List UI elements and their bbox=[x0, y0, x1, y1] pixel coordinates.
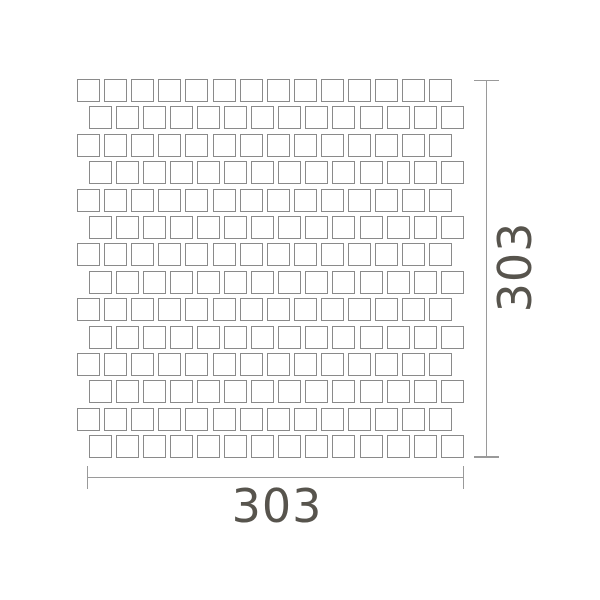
mosaic-tile bbox=[414, 216, 437, 239]
mosaic-tile bbox=[375, 134, 398, 157]
width-dimension-label: 303 bbox=[177, 483, 377, 529]
mosaic-tile bbox=[348, 134, 371, 157]
mosaic-tile bbox=[224, 380, 247, 403]
mosaic-tile bbox=[387, 271, 410, 294]
mosaic-tile bbox=[251, 326, 274, 349]
mosaic-tile bbox=[213, 298, 236, 321]
mosaic-tile bbox=[143, 380, 166, 403]
mosaic-tile bbox=[321, 353, 344, 376]
mosaic-tile bbox=[414, 271, 437, 294]
width-dimension-left-tick bbox=[87, 466, 88, 489]
mosaic-tile bbox=[131, 189, 154, 212]
mosaic-tile bbox=[89, 435, 112, 458]
mosaic-tile bbox=[375, 189, 398, 212]
mosaic-tile bbox=[278, 216, 301, 239]
mosaic-tile bbox=[278, 380, 301, 403]
mosaic-tile bbox=[77, 243, 100, 266]
mosaic-tile bbox=[267, 79, 290, 102]
mosaic-tile bbox=[414, 161, 437, 184]
mosaic-tile bbox=[429, 189, 452, 212]
mosaic-tile bbox=[77, 298, 100, 321]
mosaic-tile bbox=[332, 271, 355, 294]
height-dimension-label: 303 bbox=[481, 197, 549, 337]
mosaic-tile bbox=[402, 243, 425, 266]
mosaic-tile bbox=[332, 435, 355, 458]
mosaic-tile bbox=[158, 353, 181, 376]
mosaic-tile bbox=[251, 271, 274, 294]
mosaic-tile bbox=[143, 326, 166, 349]
mosaic-tile bbox=[197, 435, 220, 458]
mosaic-tile bbox=[441, 380, 464, 403]
mosaic-tile bbox=[278, 106, 301, 129]
height-dimension-bottom-cap bbox=[474, 456, 499, 458]
width-dimension-line bbox=[87, 477, 464, 478]
mosaic-tile bbox=[89, 326, 112, 349]
mosaic-tile bbox=[429, 353, 452, 376]
mosaic-tile bbox=[89, 380, 112, 403]
mosaic-tile bbox=[104, 189, 127, 212]
mosaic-tile bbox=[104, 79, 127, 102]
mosaic-tile bbox=[294, 243, 317, 266]
mosaic-tile bbox=[402, 189, 425, 212]
mosaic-tile bbox=[360, 271, 383, 294]
mosaic-tile bbox=[213, 243, 236, 266]
mosaic-tile bbox=[348, 243, 371, 266]
mosaic-tile bbox=[77, 79, 100, 102]
mosaic-tile bbox=[158, 79, 181, 102]
mosaic-tile bbox=[104, 353, 127, 376]
mosaic-tile bbox=[185, 134, 208, 157]
mosaic-tile bbox=[360, 435, 383, 458]
mosaic-tile bbox=[197, 271, 220, 294]
mosaic-tile bbox=[429, 134, 452, 157]
mosaic-tile bbox=[294, 408, 317, 431]
mosaic-tile bbox=[360, 106, 383, 129]
mosaic-tile bbox=[185, 243, 208, 266]
mosaic-tile bbox=[305, 106, 328, 129]
mosaic-tile bbox=[321, 189, 344, 212]
mosaic-tile bbox=[414, 326, 437, 349]
mosaic-tile bbox=[332, 161, 355, 184]
mosaic-tile bbox=[387, 106, 410, 129]
mosaic-tile bbox=[387, 435, 410, 458]
mosaic-tile bbox=[224, 216, 247, 239]
mosaic-tile bbox=[143, 106, 166, 129]
mosaic-tile bbox=[348, 79, 371, 102]
mosaic-tile bbox=[224, 435, 247, 458]
mosaic-tile bbox=[143, 216, 166, 239]
height-dimension-top-cap bbox=[474, 80, 499, 82]
mosaic-tile bbox=[414, 106, 437, 129]
mosaic-tile bbox=[116, 380, 139, 403]
mosaic-tile bbox=[332, 380, 355, 403]
mosaic-tile bbox=[429, 408, 452, 431]
mosaic-tile bbox=[267, 134, 290, 157]
mosaic-tile bbox=[429, 79, 452, 102]
mosaic-tile bbox=[116, 326, 139, 349]
mosaic-tile bbox=[360, 380, 383, 403]
mosaic-tile bbox=[305, 271, 328, 294]
mosaic-tile bbox=[305, 161, 328, 184]
mosaic-tile bbox=[240, 189, 263, 212]
mosaic-tile bbox=[158, 134, 181, 157]
mosaic-tile bbox=[143, 435, 166, 458]
mosaic-tile bbox=[116, 161, 139, 184]
mosaic-tile bbox=[332, 216, 355, 239]
mosaic-tile bbox=[251, 216, 274, 239]
mosaic-tile bbox=[240, 134, 263, 157]
mosaic-tile bbox=[441, 216, 464, 239]
mosaic-tile bbox=[185, 189, 208, 212]
mosaic-tile bbox=[414, 380, 437, 403]
mosaic-tile bbox=[441, 435, 464, 458]
mosaic-tile bbox=[197, 380, 220, 403]
mosaic-tile bbox=[240, 79, 263, 102]
mosaic-tile bbox=[294, 134, 317, 157]
mosaic-tile bbox=[185, 298, 208, 321]
mosaic-tile bbox=[402, 353, 425, 376]
mosaic-tile bbox=[170, 161, 193, 184]
mosaic-tile bbox=[143, 271, 166, 294]
mosaic-tile bbox=[143, 161, 166, 184]
mosaic-tile bbox=[158, 298, 181, 321]
mosaic-tile bbox=[332, 106, 355, 129]
mosaic-tile bbox=[278, 161, 301, 184]
mosaic-tile bbox=[213, 134, 236, 157]
mosaic-tile bbox=[116, 271, 139, 294]
mosaic-tile bbox=[251, 161, 274, 184]
mosaic-tile bbox=[131, 353, 154, 376]
mosaic-tile bbox=[170, 271, 193, 294]
technical-drawing-canvas: 303 303 bbox=[0, 0, 600, 600]
mosaic-tile bbox=[321, 79, 344, 102]
mosaic-tile bbox=[414, 435, 437, 458]
mosaic-tile bbox=[429, 243, 452, 266]
mosaic-tile bbox=[213, 79, 236, 102]
mosaic-tile bbox=[267, 298, 290, 321]
mosaic-tile bbox=[348, 189, 371, 212]
mosaic-tile bbox=[224, 271, 247, 294]
mosaic-tile bbox=[240, 353, 263, 376]
mosaic-tile bbox=[158, 189, 181, 212]
mosaic-tile bbox=[197, 326, 220, 349]
mosaic-tile bbox=[251, 435, 274, 458]
mosaic-tile bbox=[197, 216, 220, 239]
mosaic-tile bbox=[104, 243, 127, 266]
mosaic-tile bbox=[170, 216, 193, 239]
mosaic-tile bbox=[375, 79, 398, 102]
mosaic-tile bbox=[441, 326, 464, 349]
mosaic-tile bbox=[77, 134, 100, 157]
mosaic-tile bbox=[402, 298, 425, 321]
mosaic-tile bbox=[278, 271, 301, 294]
mosaic-tile bbox=[360, 216, 383, 239]
mosaic-tile bbox=[387, 326, 410, 349]
mosaic-tile bbox=[131, 243, 154, 266]
mosaic-tile bbox=[213, 353, 236, 376]
mosaic-tile bbox=[360, 326, 383, 349]
mosaic-tile bbox=[131, 298, 154, 321]
mosaic-tile bbox=[375, 408, 398, 431]
mosaic-tile bbox=[294, 79, 317, 102]
mosaic-tile bbox=[267, 353, 290, 376]
mosaic-tile bbox=[402, 134, 425, 157]
mosaic-tile bbox=[375, 353, 398, 376]
mosaic-tile bbox=[251, 380, 274, 403]
mosaic-tile bbox=[224, 106, 247, 129]
mosaic-tile bbox=[104, 298, 127, 321]
mosaic-tile bbox=[170, 106, 193, 129]
mosaic-tile bbox=[402, 79, 425, 102]
mosaic-tile bbox=[387, 216, 410, 239]
width-dimension-right-tick bbox=[463, 466, 464, 489]
mosaic-tile bbox=[278, 435, 301, 458]
mosaic-tile bbox=[305, 380, 328, 403]
mosaic-tile bbox=[89, 271, 112, 294]
mosaic-tile bbox=[387, 380, 410, 403]
mosaic-tile bbox=[441, 271, 464, 294]
mosaic-tile bbox=[305, 435, 328, 458]
mosaic-tile bbox=[294, 298, 317, 321]
mosaic-tile bbox=[185, 353, 208, 376]
mosaic-tile bbox=[360, 161, 383, 184]
mosaic-tile bbox=[213, 189, 236, 212]
mosaic-tile bbox=[89, 161, 112, 184]
mosaic-tile bbox=[131, 79, 154, 102]
mosaic-tile bbox=[278, 326, 301, 349]
mosaic-tile bbox=[170, 435, 193, 458]
mosaic-tile bbox=[224, 161, 247, 184]
mosaic-tile bbox=[240, 298, 263, 321]
mosaic-tile bbox=[348, 353, 371, 376]
mosaic-tile bbox=[158, 408, 181, 431]
mosaic-tile bbox=[131, 408, 154, 431]
mosaic-tile bbox=[321, 243, 344, 266]
mosaic-tile bbox=[375, 243, 398, 266]
mosaic-tile bbox=[158, 243, 181, 266]
mosaic-tile bbox=[321, 408, 344, 431]
mosaic-tile bbox=[116, 106, 139, 129]
mosaic-tile bbox=[89, 216, 112, 239]
mosaic-tile bbox=[402, 408, 425, 431]
mosaic-tile bbox=[441, 106, 464, 129]
mosaic-tile bbox=[116, 435, 139, 458]
mosaic-tile bbox=[348, 408, 371, 431]
mosaic-tile bbox=[429, 298, 452, 321]
mosaic-tile bbox=[294, 189, 317, 212]
mosaic-tile bbox=[348, 298, 371, 321]
mosaic-tile bbox=[77, 353, 100, 376]
mosaic-tile bbox=[197, 161, 220, 184]
mosaic-tile bbox=[185, 408, 208, 431]
mosaic-tile bbox=[267, 243, 290, 266]
mosaic-tile bbox=[104, 134, 127, 157]
mosaic-tile bbox=[224, 326, 247, 349]
mosaic-tile bbox=[387, 161, 410, 184]
mosaic-tile bbox=[116, 216, 139, 239]
mosaic-tile bbox=[305, 326, 328, 349]
mosaic-tile bbox=[240, 408, 263, 431]
mosaic-tile bbox=[104, 408, 127, 431]
mosaic-tile bbox=[251, 106, 274, 129]
mosaic-tile bbox=[305, 216, 328, 239]
mosaic-tile bbox=[375, 298, 398, 321]
mosaic-tile bbox=[131, 134, 154, 157]
mosaic-tile bbox=[170, 326, 193, 349]
mosaic-tile bbox=[185, 79, 208, 102]
mosaic-tile bbox=[294, 353, 317, 376]
mosaic-tile bbox=[267, 189, 290, 212]
mosaic-tile bbox=[77, 189, 100, 212]
mosaic-tile bbox=[441, 161, 464, 184]
mosaic-tile bbox=[267, 408, 290, 431]
mosaic-tile bbox=[321, 298, 344, 321]
mosaic-tile bbox=[240, 243, 263, 266]
mosaic-tile bbox=[170, 380, 193, 403]
mosaic-tile bbox=[321, 134, 344, 157]
mosaic-tile bbox=[197, 106, 220, 129]
mosaic-tile bbox=[213, 408, 236, 431]
mosaic-tile bbox=[77, 408, 100, 431]
mosaic-tile bbox=[332, 326, 355, 349]
mosaic-tile bbox=[89, 106, 112, 129]
